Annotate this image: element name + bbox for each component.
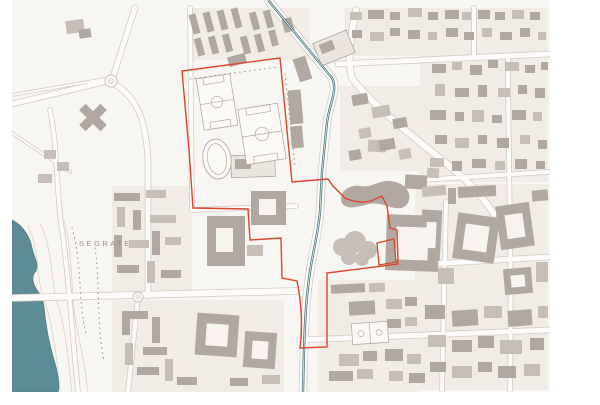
building-footprint: [530, 12, 540, 20]
building-footprint: [536, 161, 545, 169]
building-courtyard: [205, 323, 228, 346]
building-footprint: [530, 338, 544, 350]
building-footprint: [230, 378, 248, 386]
building-footprint: [495, 12, 505, 20]
building-footprint: [398, 148, 412, 160]
building-footprint: [390, 28, 400, 36]
building-footprint: [349, 300, 376, 315]
building-footprint: [524, 364, 540, 376]
building-footprint: [152, 231, 160, 255]
building-footprint: [78, 28, 91, 39]
building-footprint: [538, 306, 548, 318]
building-footprint: [117, 265, 139, 273]
building-footprint: [445, 10, 459, 19]
building-footprint: [458, 185, 497, 198]
building-footprint: [44, 150, 56, 159]
building-footprint: [464, 32, 474, 40]
building-footprint: [452, 161, 462, 171]
building-footprint: [125, 343, 133, 365]
building-footprint: [262, 375, 280, 384]
place-label-segrate: SEGRATE: [79, 239, 132, 248]
building-footprint: [150, 215, 176, 223]
building-footprint: [386, 299, 402, 309]
building-footprint: [497, 138, 509, 148]
building-courtyard: [395, 226, 428, 260]
building-footprint: [147, 261, 155, 283]
building-footprint: [430, 362, 446, 372]
soccer-field: [238, 103, 286, 165]
map-canvas: SEGRATE: [0, 0, 600, 405]
building-footprint: [408, 8, 422, 17]
building-footprint: [482, 28, 492, 37]
building-courtyard: [504, 213, 525, 239]
map-sheet: SEGRATE: [0, 0, 600, 405]
building-footprint: [428, 12, 438, 20]
building-footprint: [520, 28, 530, 37]
building-footprint: [117, 207, 125, 227]
building-footprint: [451, 309, 478, 327]
building-footprint: [129, 240, 149, 248]
building-footprint: [427, 168, 440, 179]
building-footprint: [165, 359, 173, 381]
building-footprint: [541, 62, 548, 70]
building-footprint: [538, 32, 546, 40]
building-footprint: [350, 12, 362, 20]
building-footprint: [390, 12, 400, 20]
building-footprint: [331, 283, 365, 294]
building-footprint: [425, 305, 445, 319]
building-courtyard: [462, 223, 489, 252]
building-footprint: [520, 135, 530, 144]
building-footprint: [478, 362, 492, 372]
building-footprint: [478, 135, 487, 144]
building-footprint: [143, 347, 167, 355]
tree-cluster-blob: [341, 249, 357, 265]
building-footprint: [369, 283, 385, 293]
building-footprint: [462, 12, 471, 20]
building-footprint: [428, 335, 446, 347]
building-courtyard: [251, 340, 268, 359]
building-footprint: [368, 10, 384, 19]
building-footprint: [57, 162, 69, 171]
building-footprint: [472, 110, 484, 122]
building-footprint: [500, 340, 522, 354]
building-courtyard: [259, 199, 276, 215]
building-footprint: [515, 159, 527, 169]
building-footprint: [357, 369, 373, 379]
building-footprint: [152, 317, 160, 343]
building-footprint: [518, 85, 527, 94]
building-footprint: [512, 10, 524, 19]
building-footprint: [538, 140, 547, 149]
building-footprint: [478, 85, 487, 97]
building-footprint: [370, 32, 384, 41]
building-footprint: [455, 112, 464, 121]
building-footprint: [488, 60, 498, 68]
building-footprint: [329, 371, 353, 381]
building-footprint: [430, 158, 444, 167]
roundabout-island: [136, 295, 141, 300]
building-footprint: [452, 62, 462, 70]
building-footprint: [435, 135, 447, 144]
building-footprint: [535, 88, 545, 98]
map-content: SEGRATE: [12, 0, 550, 392]
building-footprint: [500, 32, 512, 40]
building-footprint: [533, 112, 542, 121]
building-footprint: [133, 210, 141, 230]
building-footprint: [428, 32, 437, 40]
building-footprint: [446, 28, 458, 37]
building-footprint: [505, 62, 519, 71]
building-footprint: [165, 237, 181, 245]
building-footprint: [536, 262, 548, 282]
tree-cluster-blob: [355, 252, 369, 266]
building-footprint: [452, 366, 472, 378]
building-footprint: [290, 126, 304, 149]
building-footprint: [422, 185, 447, 197]
building-footprint: [438, 268, 454, 284]
building-footprint: [408, 30, 420, 39]
building-footprint: [435, 84, 445, 96]
building-courtyard: [425, 222, 436, 248]
building-footprint: [352, 30, 362, 38]
building-footprint: [114, 193, 140, 201]
building-footprint: [478, 10, 490, 19]
building-footprint: [405, 317, 417, 326]
building-footprint: [448, 188, 456, 204]
building-footprint: [137, 367, 159, 375]
building-footprint: [409, 373, 425, 383]
building-footprint: [339, 354, 359, 366]
basketball-court: [351, 321, 388, 344]
building-footprint: [492, 115, 502, 123]
building-footprint: [495, 161, 505, 170]
roundabout-island: [108, 78, 113, 83]
building-footprint: [432, 64, 446, 73]
building-footprint: [452, 340, 472, 352]
building-footprint: [507, 309, 532, 327]
building-footprint: [512, 110, 526, 120]
building-footprint: [363, 351, 377, 361]
building-footprint: [498, 366, 516, 378]
building-footprint: [358, 127, 372, 139]
building-footprint: [470, 65, 482, 75]
building-courtyard: [216, 228, 233, 252]
building-footprint: [247, 245, 263, 256]
building-footprint: [161, 270, 181, 278]
building-footprint: [484, 306, 502, 318]
building-footprint: [498, 88, 510, 97]
building-footprint: [122, 311, 130, 335]
building-footprint: [146, 190, 166, 198]
building-footprint: [478, 336, 494, 348]
building-footprint: [525, 65, 535, 73]
building-footprint: [38, 174, 52, 183]
building-footprint: [177, 377, 197, 385]
building-courtyard: [511, 274, 526, 287]
building-footprint: [455, 88, 469, 97]
building-footprint: [455, 138, 469, 148]
building-footprint: [407, 354, 421, 364]
building-footprint: [389, 371, 403, 381]
building-footprint: [405, 297, 417, 306]
building-footprint: [430, 110, 446, 120]
building-footprint: [532, 189, 549, 201]
building-footprint: [348, 149, 362, 161]
building-footprint: [387, 319, 401, 328]
building-footprint: [385, 349, 403, 361]
building-footprint: [472, 159, 486, 168]
